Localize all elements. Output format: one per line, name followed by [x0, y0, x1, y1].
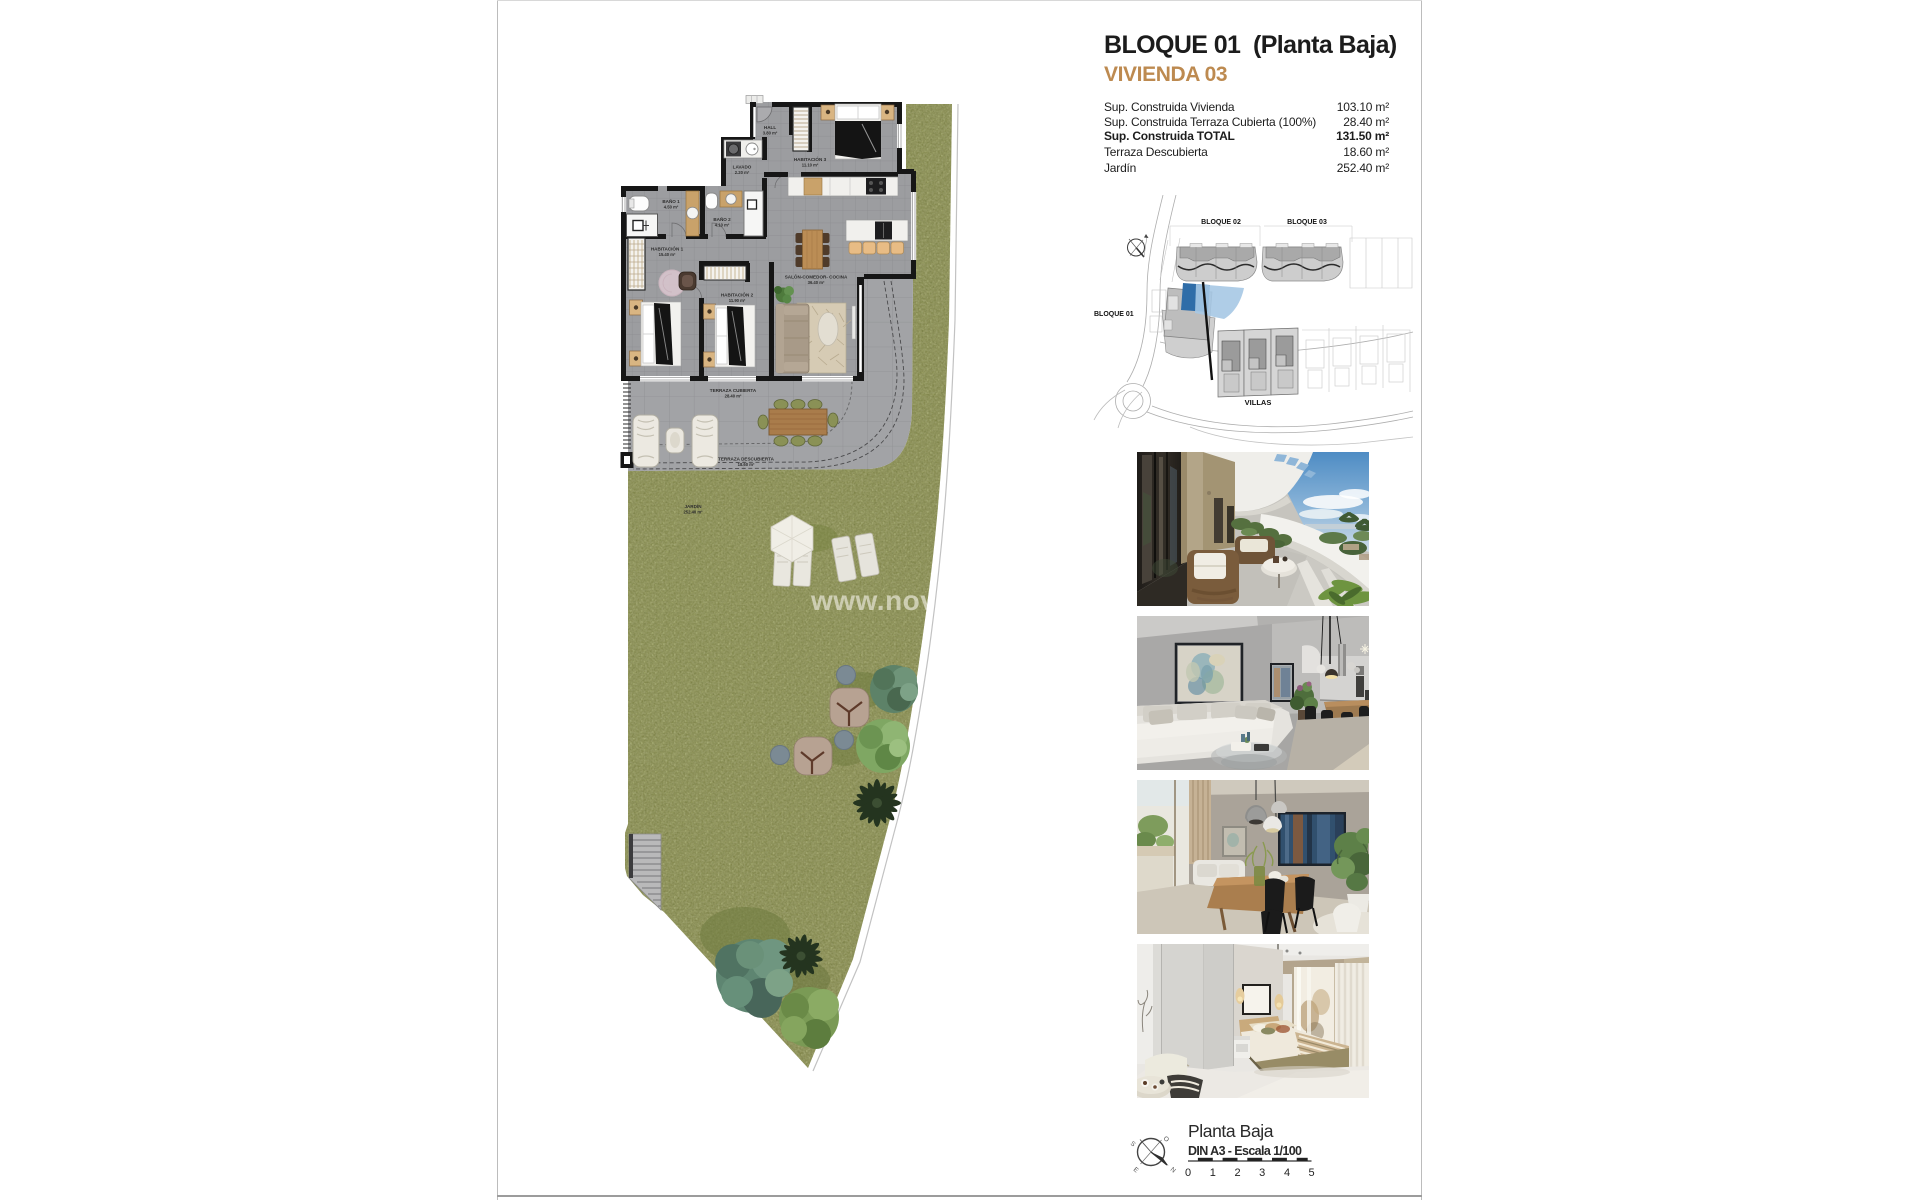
- svg-text:4.50 m²: 4.50 m²: [664, 205, 679, 210]
- svg-text:5: 5: [1308, 1167, 1314, 1179]
- svg-text:2: 2: [1234, 1167, 1240, 1179]
- svg-text:HABITACIÓN 3: HABITACIÓN 3: [794, 155, 827, 162]
- svg-text:BLOQUE 02: BLOQUE 02: [1201, 219, 1241, 226]
- svg-text:2.20 m²: 2.20 m²: [735, 170, 750, 175]
- svg-text:O: O: [1162, 1135, 1170, 1144]
- svg-text:HALL: HALL: [764, 125, 776, 130]
- svg-text:VILLAS: VILLAS: [1245, 398, 1272, 407]
- svg-text:LAVADO: LAVADO: [733, 165, 752, 170]
- svg-text:1: 1: [1210, 1167, 1216, 1179]
- svg-text:TERRAZA CUBIERTA: TERRAZA CUBIERTA: [710, 388, 757, 393]
- svg-text:HABITACIÓN 2: HABITACIÓN 2: [721, 291, 754, 298]
- svg-text:252.40 m²: 252.40 m²: [683, 510, 703, 515]
- svg-text:SALÓN-COMEDOR- COCINA: SALÓN-COMEDOR- COCINA: [785, 273, 848, 280]
- svg-text:11.10 m²: 11.10 m²: [802, 163, 819, 168]
- svg-text:S: S: [1129, 1140, 1137, 1149]
- svg-text:3.80 m²: 3.80 m²: [763, 131, 778, 136]
- svg-text:15.40 m²: 15.40 m²: [659, 252, 676, 257]
- svg-text:BAÑO 2: BAÑO 2: [713, 216, 731, 222]
- svg-text:36.40 m²: 36.40 m²: [808, 280, 825, 285]
- svg-text:TERRAZA DESCUBIERTA: TERRAZA DESCUBIERTA: [718, 457, 775, 462]
- svg-text:4: 4: [1284, 1167, 1290, 1179]
- svg-text:BLOQUE 01: BLOQUE 01: [1094, 311, 1134, 318]
- svg-text:HABITACIÓN 1: HABITACIÓN 1: [651, 245, 684, 252]
- svg-text:N: N: [1169, 1166, 1177, 1175]
- svg-text:JARDÍN: JARDÍN: [684, 502, 702, 509]
- svg-text:28.40 m²: 28.40 m²: [725, 394, 742, 399]
- svg-text:BLOQUE 03: BLOQUE 03: [1287, 219, 1327, 226]
- svg-text:11.90 m²: 11.90 m²: [729, 298, 746, 303]
- svg-text:E: E: [1132, 1166, 1140, 1175]
- svg-text:www.nov: www.nov: [810, 585, 936, 616]
- svg-text:18.60 m²: 18.60 m²: [738, 462, 755, 467]
- svg-text:3: 3: [1259, 1167, 1265, 1179]
- svg-text:4.10 m²: 4.10 m²: [715, 223, 730, 228]
- svg-text:BAÑO 1: BAÑO 1: [662, 198, 680, 204]
- svg-text:0: 0: [1185, 1167, 1191, 1179]
